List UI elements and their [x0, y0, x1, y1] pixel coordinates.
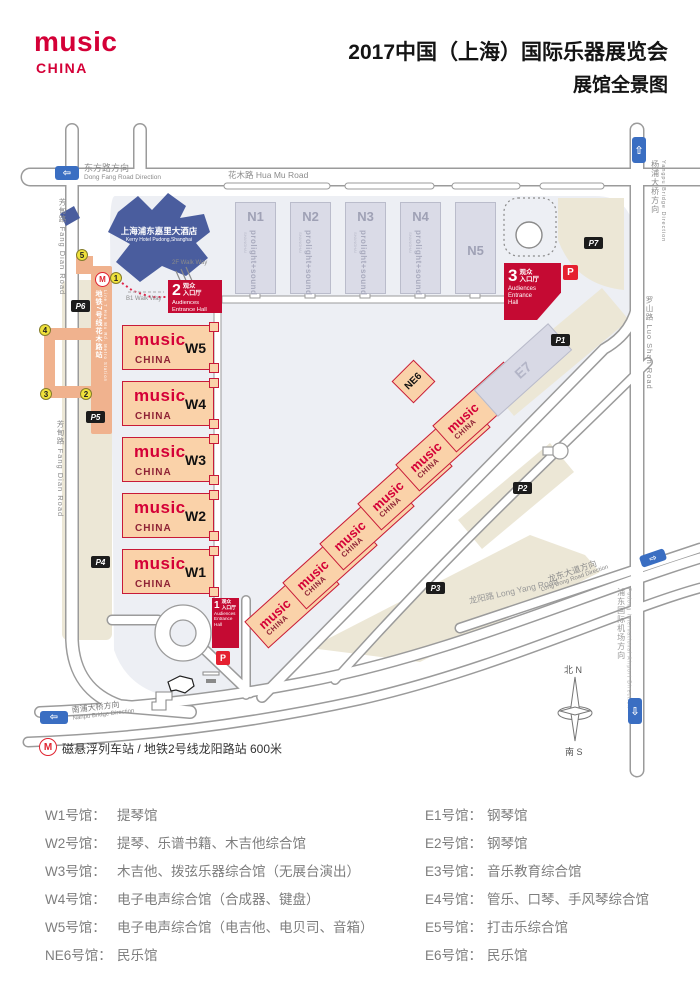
- walkway-b1-label: B1 Walk Way: [126, 296, 162, 303]
- huamu-road-label: 花木路 Hua Mu Road: [228, 170, 308, 180]
- route-marker-1: 1: [110, 272, 122, 284]
- hall-e7-label: E7: [511, 358, 534, 381]
- fangdian-road-label-bottom: 芳甸路 Fang Dian Road: [56, 420, 65, 517]
- entrance-2-number: 2: [172, 282, 181, 300]
- page-title: 2017中国（上海）国际乐器展览会: [348, 36, 668, 66]
- entrance-zh-line1: 观众: [222, 600, 232, 605]
- luoshan-road-label: 罗山路 Luo Shan Road: [645, 296, 654, 390]
- hotel-name-en: Kerry Hotel Pudong,Shanghai: [108, 237, 210, 243]
- china-brand-label: CHINA: [135, 579, 172, 590]
- page-subtitle: 展馆全景图: [573, 70, 668, 97]
- legend-row-e1: E1号馆：钢琴馆: [425, 800, 685, 828]
- parking-p6: P6: [71, 300, 90, 312]
- legend-hall-label: E1号馆：: [425, 804, 487, 824]
- legend-hall-label: E6号馆：: [425, 944, 487, 964]
- route-marker-3: 3: [40, 388, 52, 400]
- entrance-1-number: 1: [214, 600, 220, 611]
- compass-north-label: 北 N: [564, 663, 582, 676]
- music-brand-label: music: [134, 498, 186, 518]
- hall-w5: music CHINA W5: [122, 325, 214, 370]
- legend-hall-desc: 钢琴馆: [487, 804, 528, 824]
- entrance-zh-line2: 入口厅: [519, 276, 539, 283]
- hall-ne6-label: NE6: [403, 371, 425, 393]
- entrance-zh-line1: 观众: [519, 269, 532, 276]
- hall-w1: music CHINA W1: [122, 549, 214, 594]
- legend-hall-label: NE6号馆：: [45, 944, 117, 964]
- metro-logo-icon-note: M: [39, 738, 57, 756]
- entrance-zh-line2: 入口厅: [222, 606, 236, 611]
- entrance-zh-line2: 入口厅: [183, 290, 202, 297]
- hall-n5: N5: [455, 202, 496, 294]
- hall-n2: N2 prolight+sound SHANGHAI: [290, 202, 331, 294]
- china-brand-label: CHINA: [135, 411, 172, 422]
- route-marker-2: 2: [80, 388, 92, 400]
- entrance-3-number: 3: [508, 266, 517, 286]
- hall-w3-label: W3: [185, 452, 206, 468]
- shanghai-label: SHANGHAI: [298, 232, 303, 253]
- legend-hall-label: W3号馆：: [45, 860, 117, 880]
- legend-hall-desc: 民乐馆: [487, 944, 528, 964]
- fangdian-road-label-top: 芳甸路 Fang Dian Road: [58, 198, 67, 295]
- prolight-sound-label: prolight+sound: [304, 230, 313, 295]
- legend-row-e2: E2号馆：钢琴馆: [425, 828, 685, 856]
- hall-n1-label: N1: [236, 209, 275, 224]
- hall-n3: N3 prolight+sound SHANGHAI: [345, 202, 386, 294]
- dongfang-direction-en: Dong Fang Road Direction: [84, 174, 161, 182]
- shanghai-label: SHANGHAI: [243, 232, 248, 253]
- hall-w4-label: W4: [185, 396, 206, 412]
- airport-direction-en: Pudong International Airport Direction: [626, 588, 632, 709]
- legend-hall-desc: 打击乐综合馆: [487, 916, 568, 936]
- shanghai-label: SHANGHAI: [408, 232, 413, 253]
- legend-hall-desc: 木吉他、拨弦乐器综合馆（无展台演出）: [117, 860, 360, 880]
- legend-row-ne6: NE6号馆：民乐馆: [45, 940, 375, 968]
- hall-n1: N1 prolight+sound SHANGHAI: [235, 202, 276, 294]
- legend-hall-desc: 民乐馆: [117, 944, 158, 964]
- legend-hall-label: E3号馆：: [425, 860, 487, 880]
- legend-row-w5: W5号馆：电子电声综合馆（电吉他、电贝司、音箱）: [45, 912, 375, 940]
- yangpu-direction-en: Yangpu Bridge Direction: [660, 160, 667, 242]
- hall-w1-label: W1: [185, 564, 206, 580]
- hall-n4-label: N4: [401, 209, 440, 224]
- compass-icon: [558, 677, 592, 741]
- hotel-name-zh: 上海浦东嘉里大酒店: [108, 226, 210, 237]
- parking-p3: P3: [426, 582, 445, 594]
- legend-hall-desc: 管乐、口琴、手风琴综合馆: [487, 888, 649, 908]
- legend-hall-label: E2号馆：: [425, 832, 487, 852]
- parking-icon-entrance1: P: [216, 651, 230, 665]
- legend-left-column: W1号馆：提琴馆 W2号馆：提琴、乐谱书籍、木吉他综合馆 W3号馆：木吉他、拨弦…: [45, 800, 375, 968]
- yangpu-direction-zh: 杨浦大桥方向: [650, 160, 660, 242]
- walkway-2f-label: 2F Walk Way: [172, 260, 207, 267]
- hall-n5-label: N5: [456, 243, 495, 258]
- legend-hall-desc: 电子电声综合馆（电吉他、电贝司、音箱）: [117, 916, 374, 936]
- yangpu-up-arrow-icon: ⇧: [632, 137, 646, 163]
- hotel-label: 上海浦东嘉里大酒店 Kerry Hotel Pudong,Shanghai: [108, 226, 210, 243]
- legend-hall-desc: 电子电声综合馆（合成器、键盘）: [117, 888, 320, 908]
- maglev-note: 磁悬浮列车站 / 地铁2号线龙阳路站 600米: [62, 740, 282, 757]
- prolight-sound-label: prolight+sound: [249, 230, 258, 295]
- music-brand-label: music: [134, 330, 186, 350]
- legend-row-w4: W4号馆：电子电声综合馆（合成器、键盘）: [45, 884, 375, 912]
- legend-hall-desc: 音乐教育综合馆: [487, 860, 582, 880]
- metro-station-en: Line 7 Hua Mu Rd. Metro Station: [103, 290, 108, 382]
- metro-logo-icon: M: [95, 272, 110, 287]
- parking-p4: P4: [91, 556, 110, 568]
- legend-row-e6: E6号馆：民乐馆: [425, 940, 685, 968]
- legend-row-w2: W2号馆：提琴、乐谱书籍、木吉他综合馆: [45, 828, 375, 856]
- prolight-sound-label: prolight+sound: [414, 230, 423, 295]
- legend-hall-label: W2号馆：: [45, 832, 117, 852]
- entrance-2: 2 观众入口厅 Audiences Entrance Hall: [168, 280, 222, 313]
- legend-row-e4: E4号馆：管乐、口琴、手风琴综合馆: [425, 884, 685, 912]
- route-marker-4: 4: [39, 324, 51, 336]
- entrance-en-label: Audiences Entrance Hall: [214, 611, 237, 627]
- parking-icon-entrance3: P: [563, 265, 578, 280]
- hall-w2-label: W2: [185, 508, 206, 524]
- brand-logo-music: music: [34, 26, 117, 58]
- road-medians: [224, 183, 604, 189]
- china-brand-label: CHINA: [135, 355, 172, 366]
- music-brand-label: music: [134, 386, 186, 406]
- compass-south-label: 南 S: [565, 745, 583, 758]
- legend-hall-label: W5号馆：: [45, 916, 117, 936]
- hall-w4: music CHINA W4: [122, 381, 214, 426]
- hall-n4: N4 prolight+sound SHANGHAI: [400, 202, 441, 294]
- legend-row-e5: E5号馆：打击乐综合馆: [425, 912, 685, 940]
- legend-hall-label: W1号馆：: [45, 804, 117, 824]
- china-brand-label: CHINA: [135, 523, 172, 534]
- legend-hall-label: E5号馆：: [425, 916, 487, 936]
- entrance-en-label: Audiences Entrance Hall: [508, 286, 542, 307]
- legend-hall-desc: 提琴、乐谱书籍、木吉他综合馆: [117, 832, 306, 852]
- legend-hall-desc: 提琴馆: [117, 804, 158, 824]
- hall-w2: music CHINA W2: [122, 493, 214, 538]
- brand-logo-china: CHINA: [36, 60, 88, 76]
- hall-w3: music CHINA W3: [122, 437, 214, 482]
- prolight-sound-label: prolight+sound: [359, 230, 368, 295]
- hall-n2-label: N2: [291, 209, 330, 224]
- dongfang-direction-zh: 东方路方向: [84, 163, 161, 174]
- parking-p5: P5: [86, 411, 105, 423]
- nanpu-left-arrow-icon: ⇦: [40, 711, 68, 724]
- parking-p1: P1: [551, 334, 570, 346]
- legend-row-w3: W3号馆：木吉他、拨弦乐器综合馆（无展台演出）: [45, 856, 375, 884]
- airport-down-arrow-icon: ⇩: [628, 698, 642, 724]
- entrance-en-label: Audiences Entrance Hall: [172, 300, 218, 313]
- dongfang-left-arrow-icon: ⇦: [55, 166, 79, 180]
- legend-row-w1: W1号馆：提琴馆: [45, 800, 375, 828]
- legend-row-e3: E3号馆：音乐教育综合馆: [425, 856, 685, 884]
- parking-p7: P7: [584, 237, 603, 249]
- metro-station-zh: 地铁7号线花木路站: [93, 290, 103, 382]
- hall-w5-label: W5: [185, 340, 206, 356]
- shanghai-label: SHANGHAI: [353, 232, 358, 253]
- legend-right-column: E1号馆：钢琴馆 E2号馆：钢琴馆 E3号馆：音乐教育综合馆 E4号馆：管乐、口…: [425, 800, 685, 968]
- china-brand-label: CHINA: [135, 467, 172, 478]
- legend-hall-desc: 钢琴馆: [487, 832, 528, 852]
- parking-p2: P2: [513, 482, 532, 494]
- entrance-1: 1 观众入口厅 Audiences Entrance Hall: [212, 598, 239, 648]
- music-brand-label: music: [134, 442, 186, 462]
- music-brand-label: music: [134, 554, 186, 574]
- legend-hall-label: W4号馆：: [45, 888, 117, 908]
- legend-hall-label: E4号馆：: [425, 888, 487, 908]
- route-marker-5: 5: [76, 249, 88, 261]
- hall-n3-label: N3: [346, 209, 385, 224]
- airport-direction-zh: 浦东国际机场方向: [616, 588, 626, 709]
